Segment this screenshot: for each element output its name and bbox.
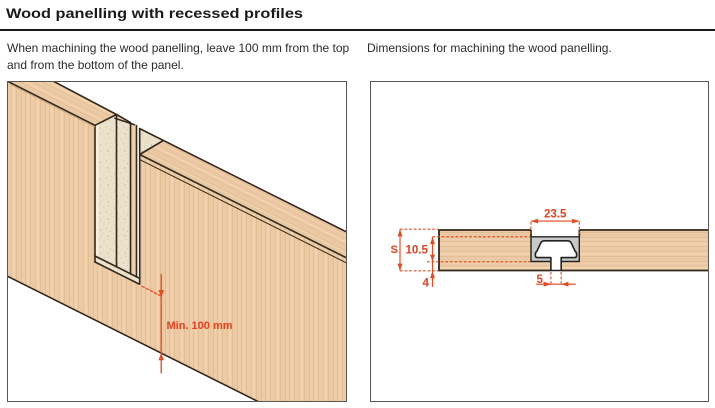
svg-text:5: 5 [537,274,544,286]
svg-text:S: S [391,244,398,256]
svg-text:23.5: 23.5 [544,209,567,221]
svg-text:4: 4 [423,278,430,290]
svg-text:Min. 100 mm: Min. 100 mm [167,320,233,332]
svg-text:10.5: 10.5 [406,244,429,256]
